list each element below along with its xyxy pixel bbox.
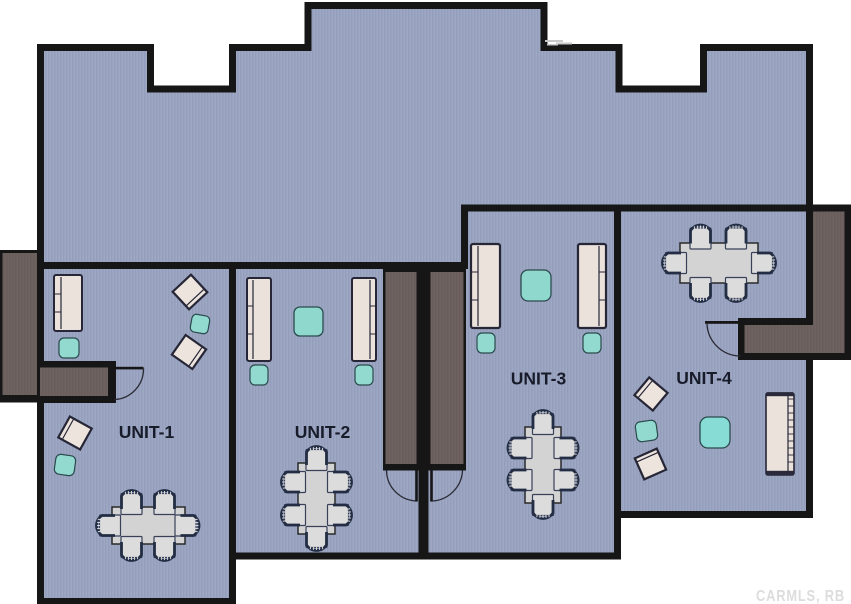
svg-text:UNIT-2: UNIT-2 [295,422,351,442]
svg-text:CARMLS, RB: CARMLS, RB [756,588,845,604]
svg-text:UNIT-3: UNIT-3 [511,369,567,389]
svg-text:UNIT-4: UNIT-4 [676,368,732,388]
svg-text:UNIT-1: UNIT-1 [119,422,175,442]
